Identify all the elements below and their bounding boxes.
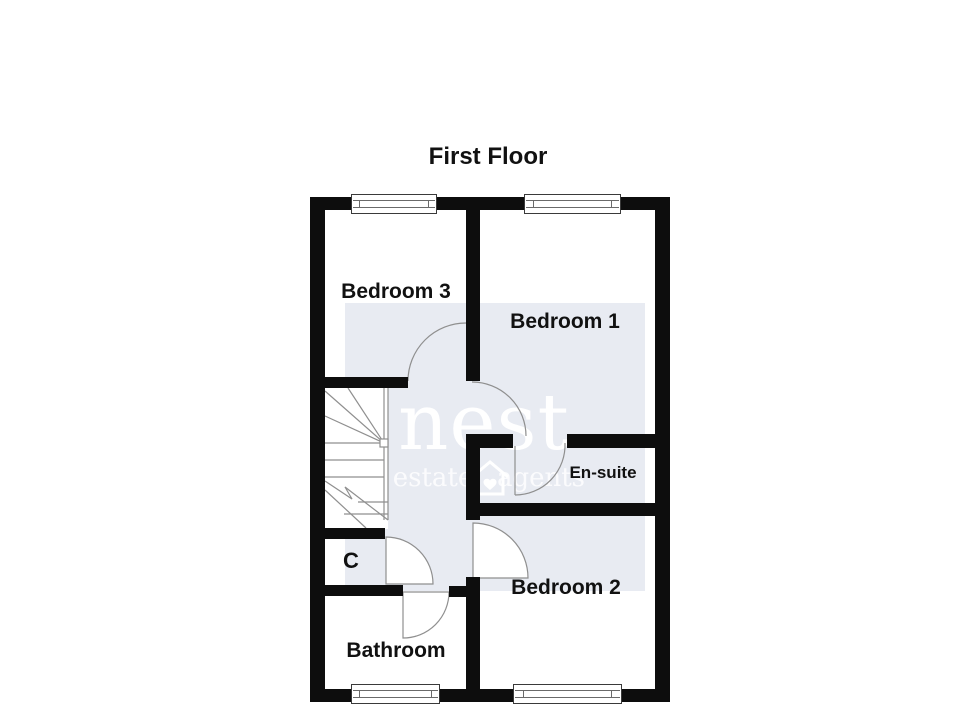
wall-ensuite-bottom: [466, 503, 656, 516]
label-bedroom3: Bedroom 3: [341, 280, 451, 304]
wall-bathroom-jamb: [449, 586, 466, 597]
window-bedroom1: [524, 194, 621, 214]
bedroom2-door: [473, 523, 528, 578]
wall-cupboard-bathroom: [325, 585, 403, 596]
label-bedroom2: Bedroom 2: [511, 576, 621, 600]
wall-outer-left: [310, 197, 325, 702]
label-bathroom: Bathroom: [346, 639, 445, 663]
plan-linework: [0, 0, 980, 712]
label-ensuite: En-suite: [569, 463, 636, 483]
bedroom3-door-arc: [408, 323, 466, 381]
wall-outer-right: [655, 197, 670, 702]
ensuite-door-arc: [515, 443, 565, 495]
cupboard-door: [386, 537, 433, 584]
bedroom1-door-arc: [472, 382, 526, 436]
wall-bed3-landing: [325, 377, 408, 388]
wall-cupboard-top: [325, 528, 385, 539]
floorplan-canvas: nest estate agents: [0, 0, 980, 712]
bathroom-door: [403, 592, 449, 638]
window-bedroom2: [513, 684, 622, 704]
window-bedroom3: [351, 194, 437, 214]
label-bedroom1: Bedroom 1: [510, 310, 620, 334]
staircase: [325, 388, 388, 529]
label-cupboard: C: [343, 548, 359, 574]
wall-bath-bed2-divider: [466, 577, 480, 689]
wall-ensuite-top-right: [567, 434, 656, 448]
wall-bed3-bed1-divider: [466, 210, 480, 381]
page-title: First Floor: [429, 143, 548, 171]
window-bathroom: [351, 684, 440, 704]
